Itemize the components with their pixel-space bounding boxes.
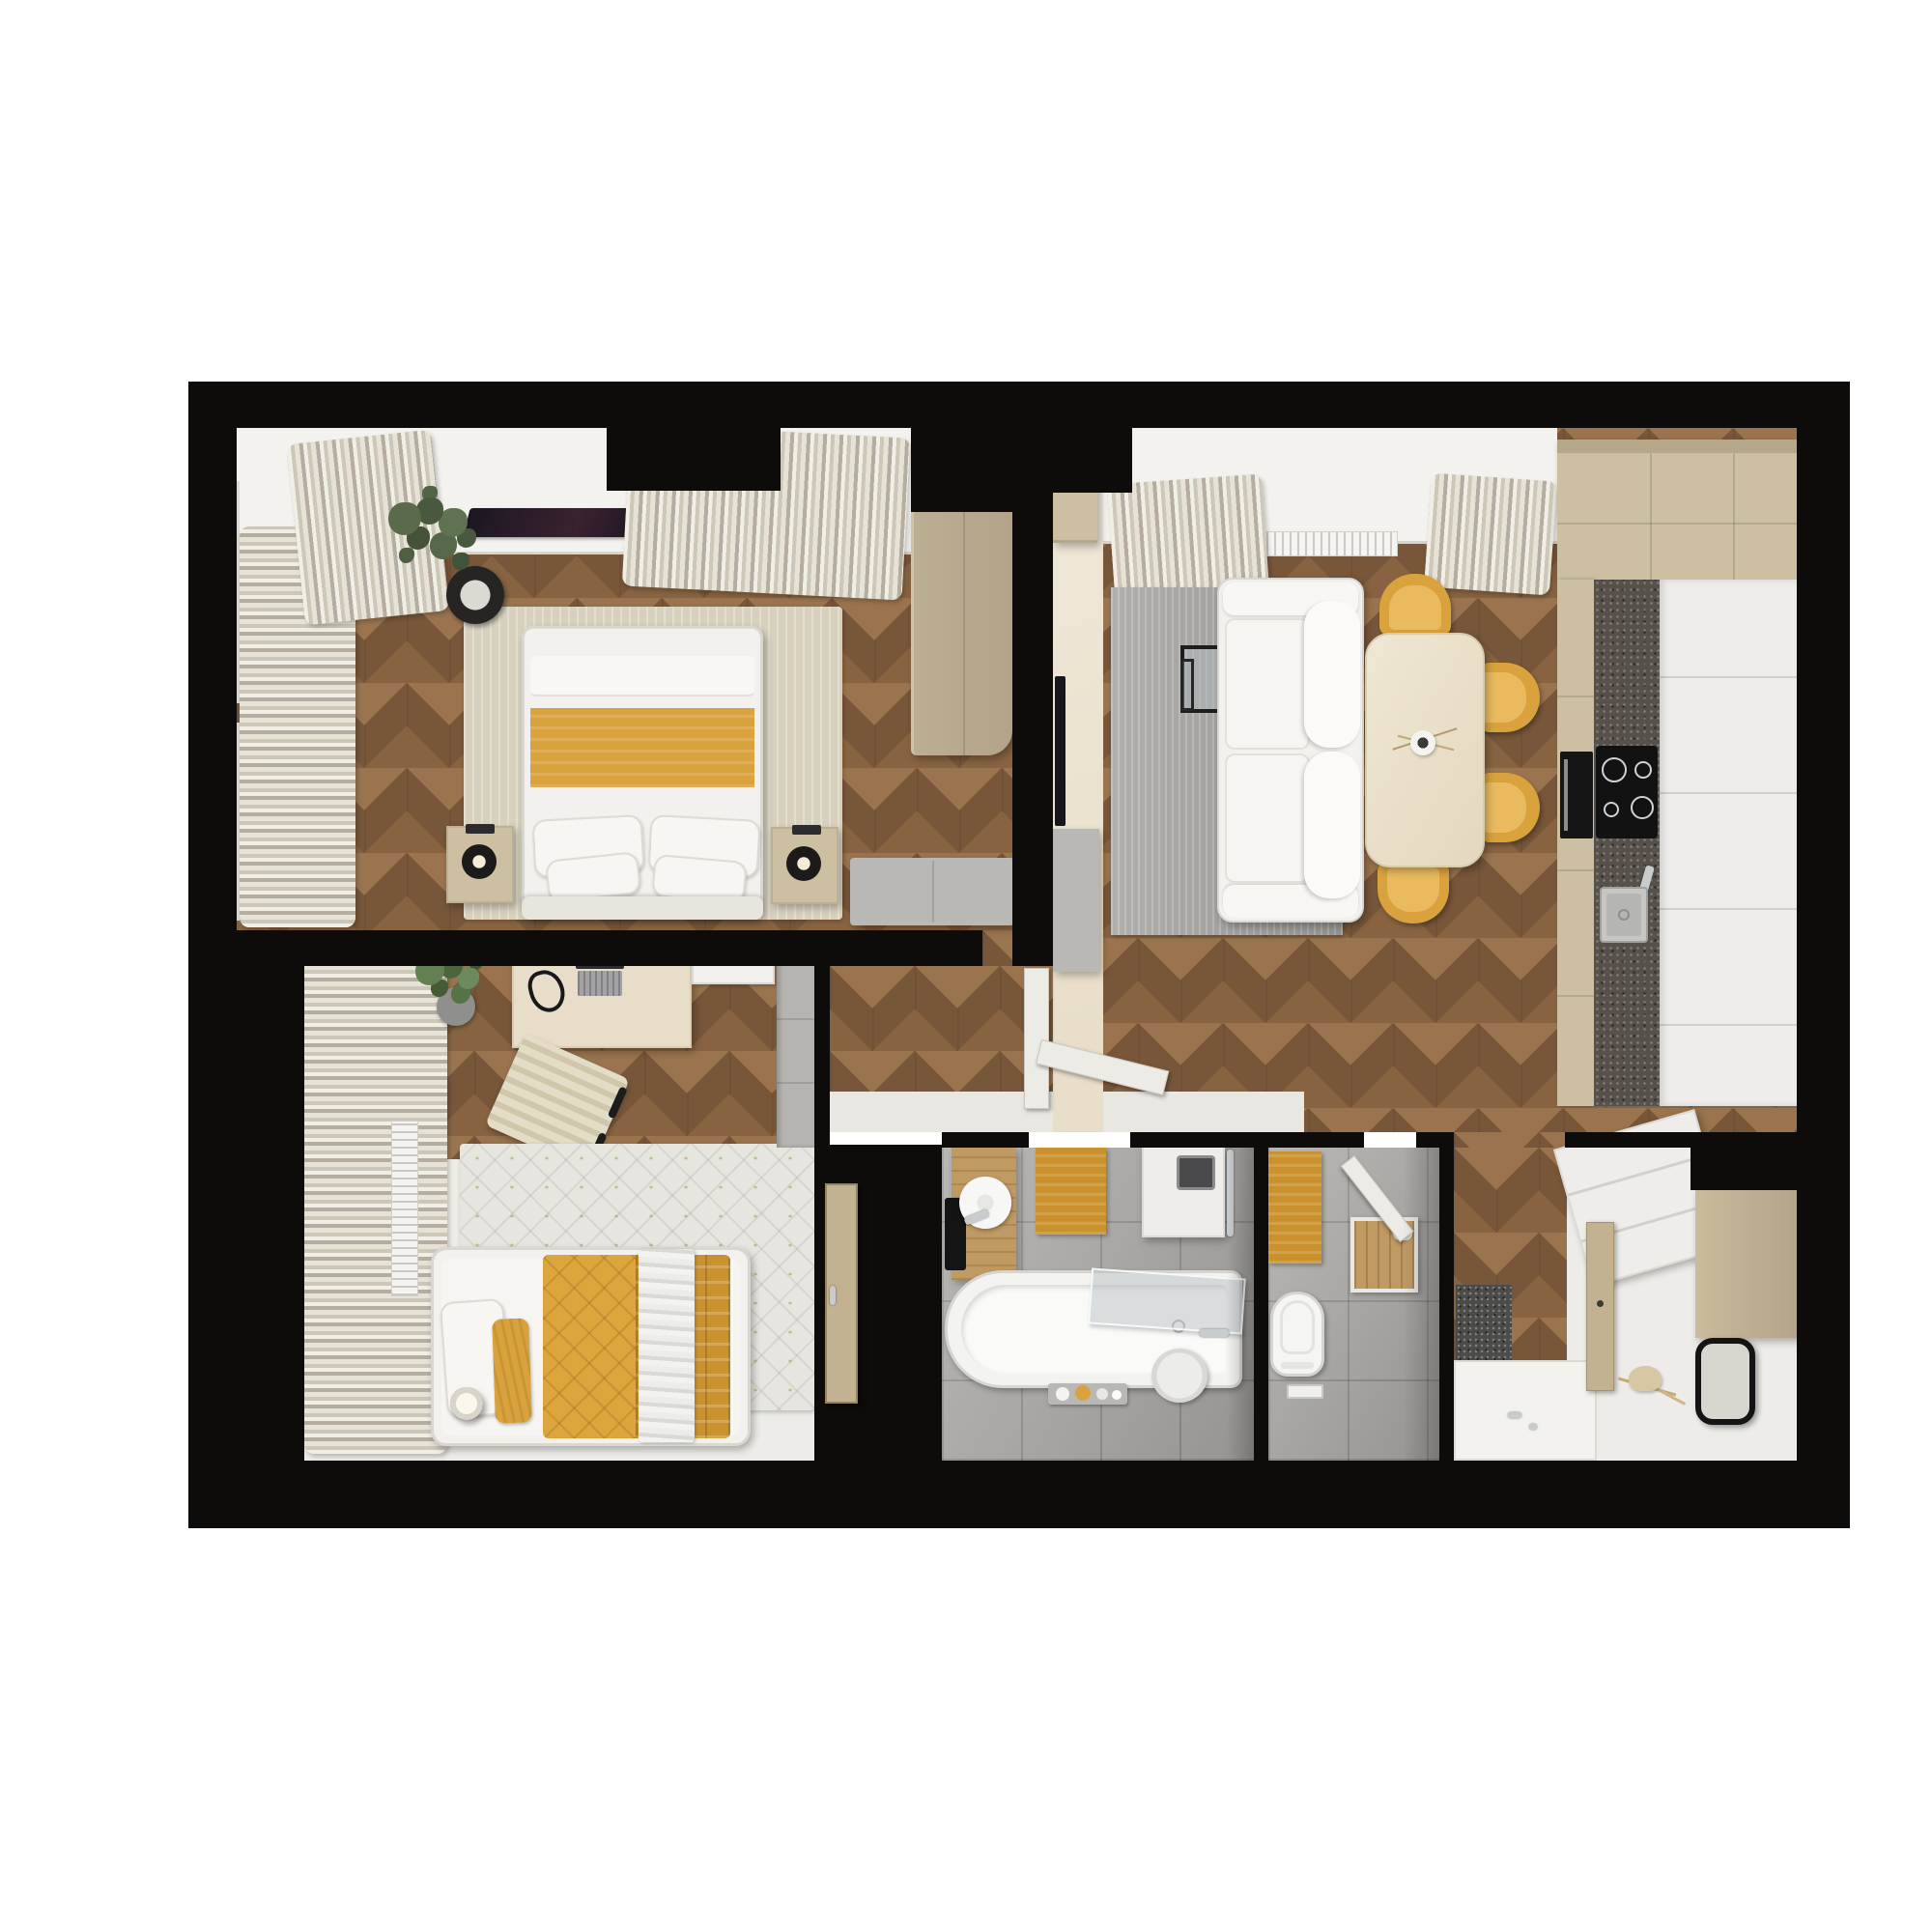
wall-bath-wc — [1254, 1145, 1268, 1461]
wall-wc-entry — [1439, 1145, 1454, 1461]
wall-corridor-south-3 — [1268, 1132, 1364, 1148]
wall-corridor-south-1 — [942, 1132, 1029, 1148]
standing-mirror — [1695, 1338, 1755, 1425]
door-handle — [830, 1286, 836, 1305]
wall-jut-master-top — [607, 382, 781, 491]
tall-beige-cabinet — [1695, 1188, 1800, 1338]
door-keyhole — [1597, 1300, 1604, 1307]
wall-jut-above-wardrobe — [911, 382, 1053, 512]
kids-door-overlay — [825, 1183, 858, 1404]
entry-door-leaf — [1586, 1222, 1614, 1391]
wall-corridor-south-2 — [1130, 1132, 1268, 1148]
outer-wall-right — [1797, 382, 1850, 1528]
outer-wall-bottom — [188, 1461, 1850, 1528]
floor-plan-canvas — [0, 0, 1932, 1932]
outer-wall-left-thick — [188, 930, 304, 1461]
hardware — [1508, 1412, 1521, 1418]
wall-jut-living-left — [1053, 382, 1132, 493]
wall-entry-corner-jut — [1690, 1132, 1797, 1190]
hardware — [1529, 1424, 1537, 1430]
wall-master-south — [188, 930, 982, 966]
white-platform — [1454, 1360, 1597, 1461]
dried-pampas — [1611, 1360, 1698, 1414]
apartment-plan — [0, 0, 1932, 1932]
wardrobe-seam — [1568, 1154, 1706, 1197]
pampas-bag — [1629, 1366, 1662, 1391]
